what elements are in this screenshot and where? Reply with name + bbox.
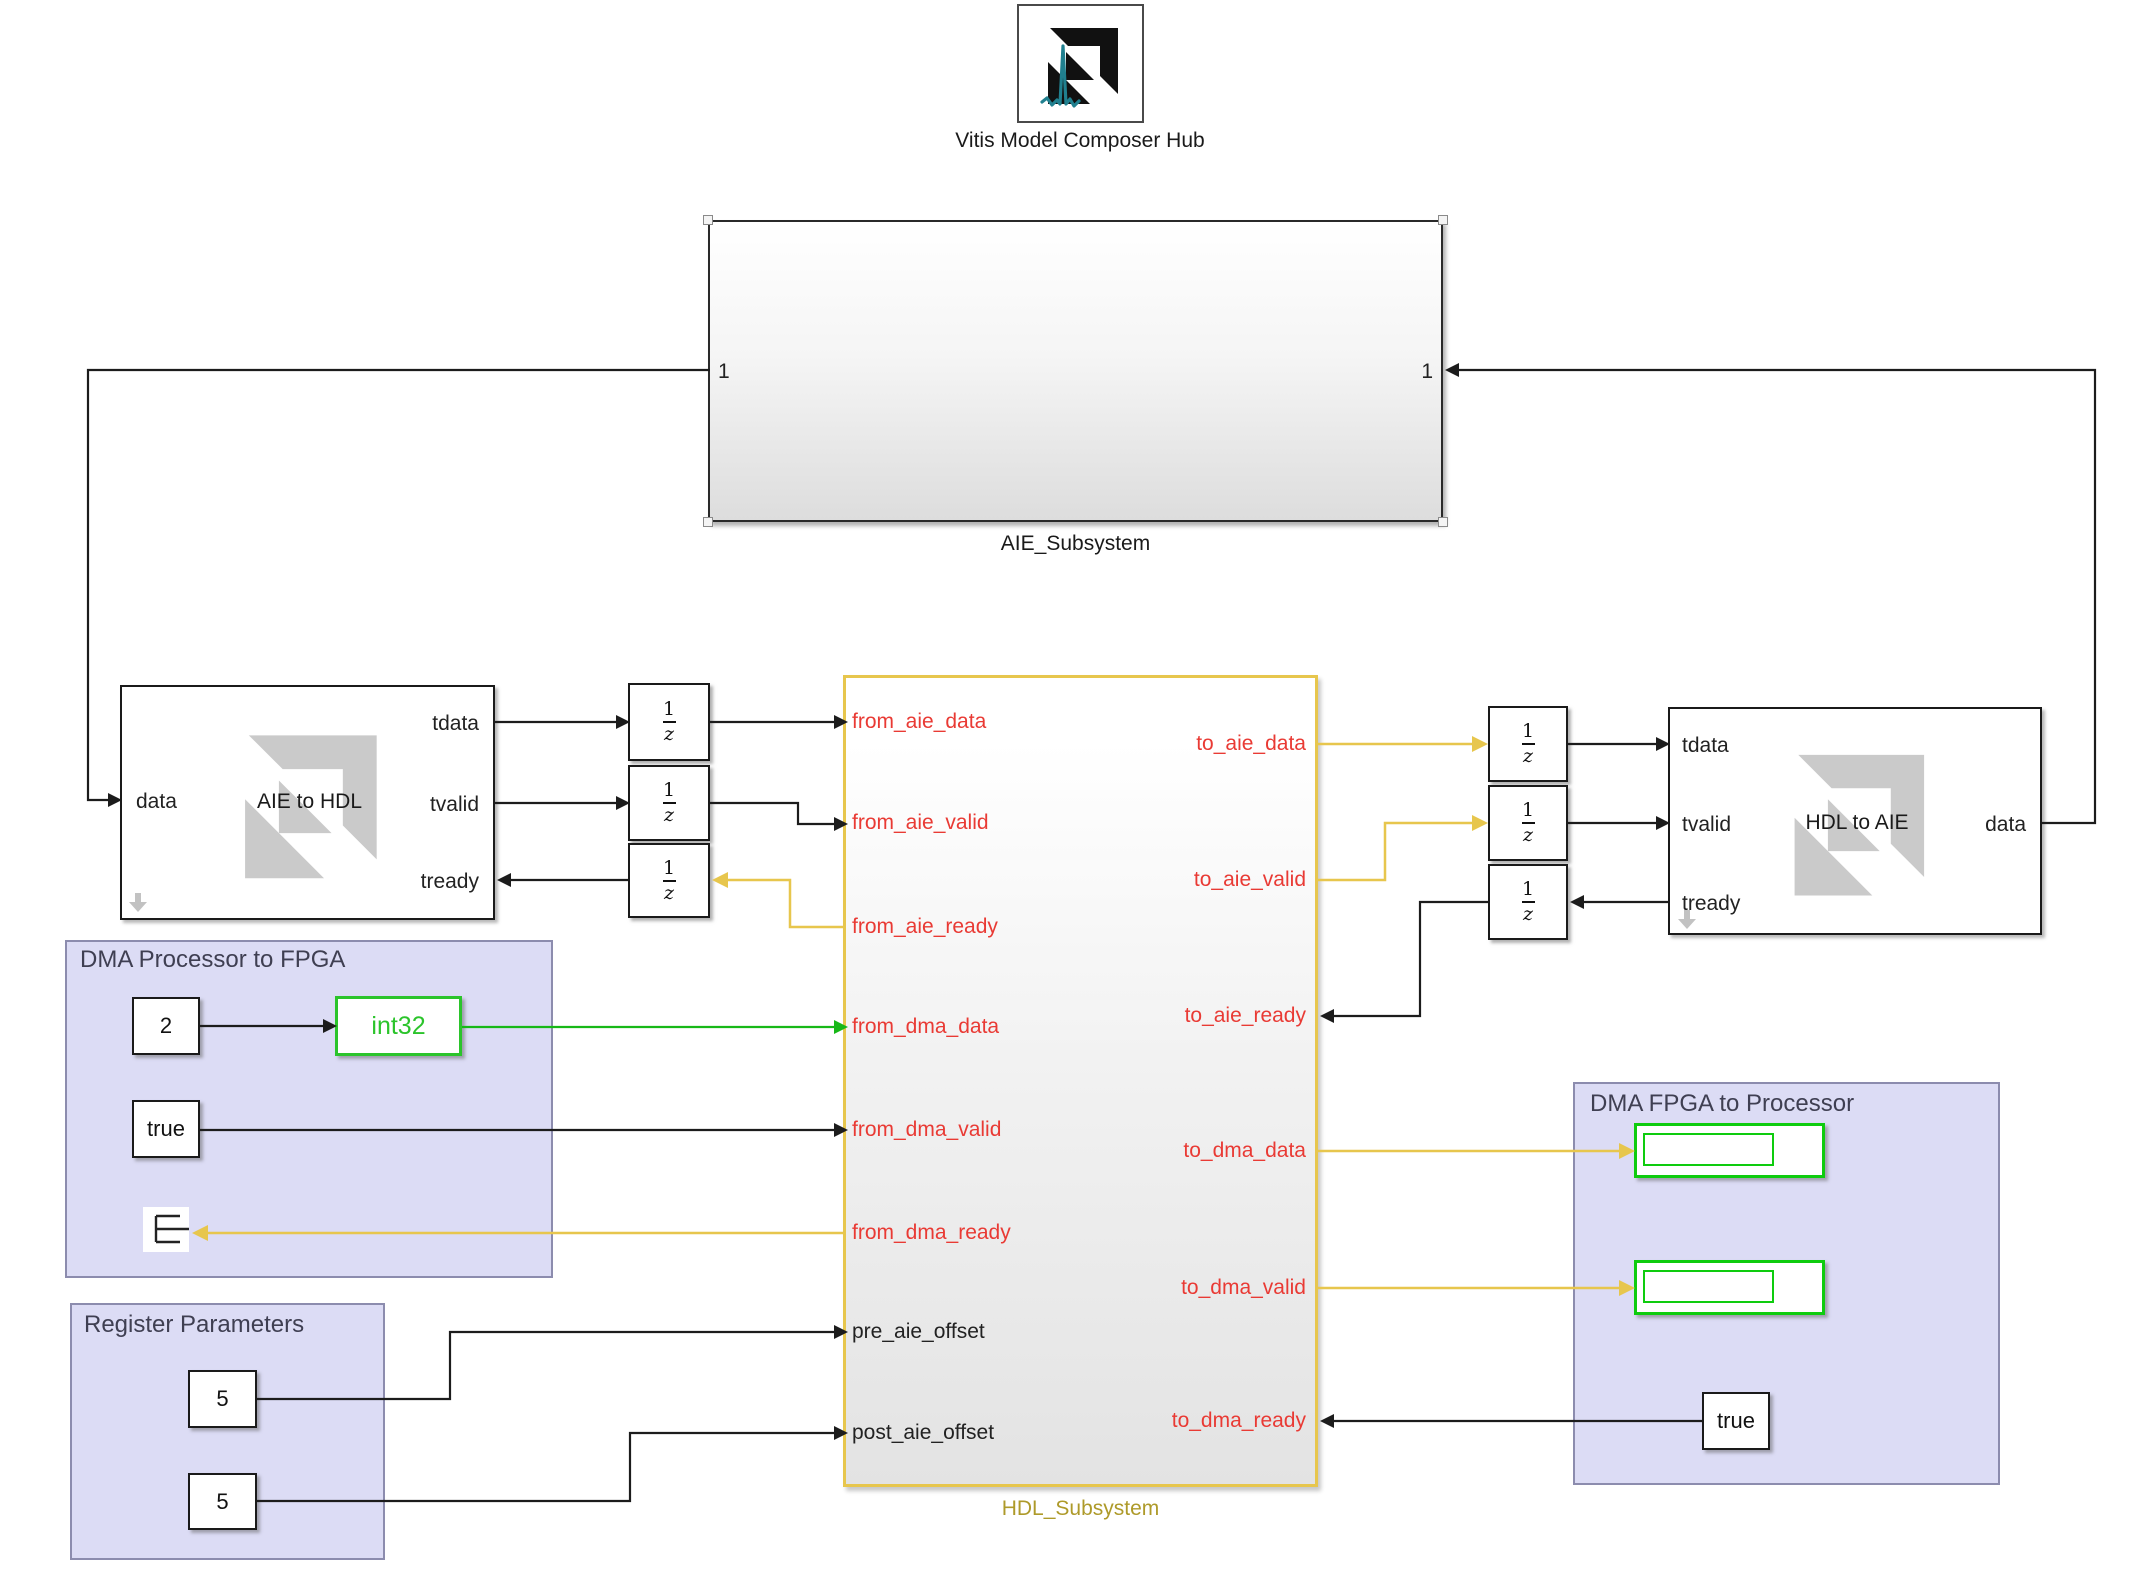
hdl-to-aie-title: HDL to AIE bbox=[1670, 810, 2044, 836]
arrowhead bbox=[323, 1019, 337, 1033]
simulink-model-canvas: Vitis Model Composer Hub 1 1 AIE_Subsyst… bbox=[0, 0, 2132, 1570]
wire-to-aie-valid-to-unit-delay[interactable] bbox=[1316, 823, 1472, 880]
wire-5-to-post-aie-offset[interactable] bbox=[257, 1433, 834, 1501]
arrowhead bbox=[712, 872, 728, 888]
arrowhead bbox=[616, 796, 630, 810]
arrowhead bbox=[1570, 895, 1584, 909]
arrowhead bbox=[497, 873, 511, 887]
arrowhead bbox=[834, 1020, 848, 1034]
arrowhead bbox=[108, 793, 122, 807]
arrowhead bbox=[616, 715, 630, 729]
aie-to-hdl-title: AIE to HDL bbox=[122, 789, 497, 815]
arrowhead bbox=[834, 1123, 848, 1137]
wire-layer bbox=[0, 0, 2132, 1570]
arrowhead bbox=[1320, 1009, 1334, 1023]
arrowhead bbox=[192, 1225, 208, 1241]
wire-unit-delay-to-to-aie-ready[interactable] bbox=[1334, 902, 1488, 1016]
arrowhead bbox=[1656, 816, 1670, 830]
wire-aie-subsystem-to-aie-to-hdl-data[interactable] bbox=[88, 370, 710, 800]
arrowhead bbox=[834, 1426, 848, 1440]
arrowhead bbox=[834, 715, 848, 729]
arrowhead bbox=[1656, 737, 1670, 751]
wire-unit-delay-to-from-aie-valid[interactable] bbox=[710, 803, 834, 824]
arrowhead bbox=[834, 1325, 848, 1339]
arrowhead bbox=[1619, 1143, 1635, 1159]
wire-from-aie-ready-to-unit-delay[interactable] bbox=[728, 880, 845, 927]
arrowhead bbox=[1445, 363, 1459, 377]
arrowhead bbox=[1619, 1280, 1635, 1296]
wire-5-to-pre-aie-offset[interactable] bbox=[257, 1332, 834, 1399]
arrowhead bbox=[834, 817, 848, 831]
arrowhead bbox=[1320, 1414, 1334, 1428]
wire-hdl-to-aie-data-to-aie-subsystem[interactable] bbox=[1459, 370, 2095, 823]
arrowhead bbox=[1472, 736, 1488, 752]
arrowhead bbox=[1472, 815, 1488, 831]
